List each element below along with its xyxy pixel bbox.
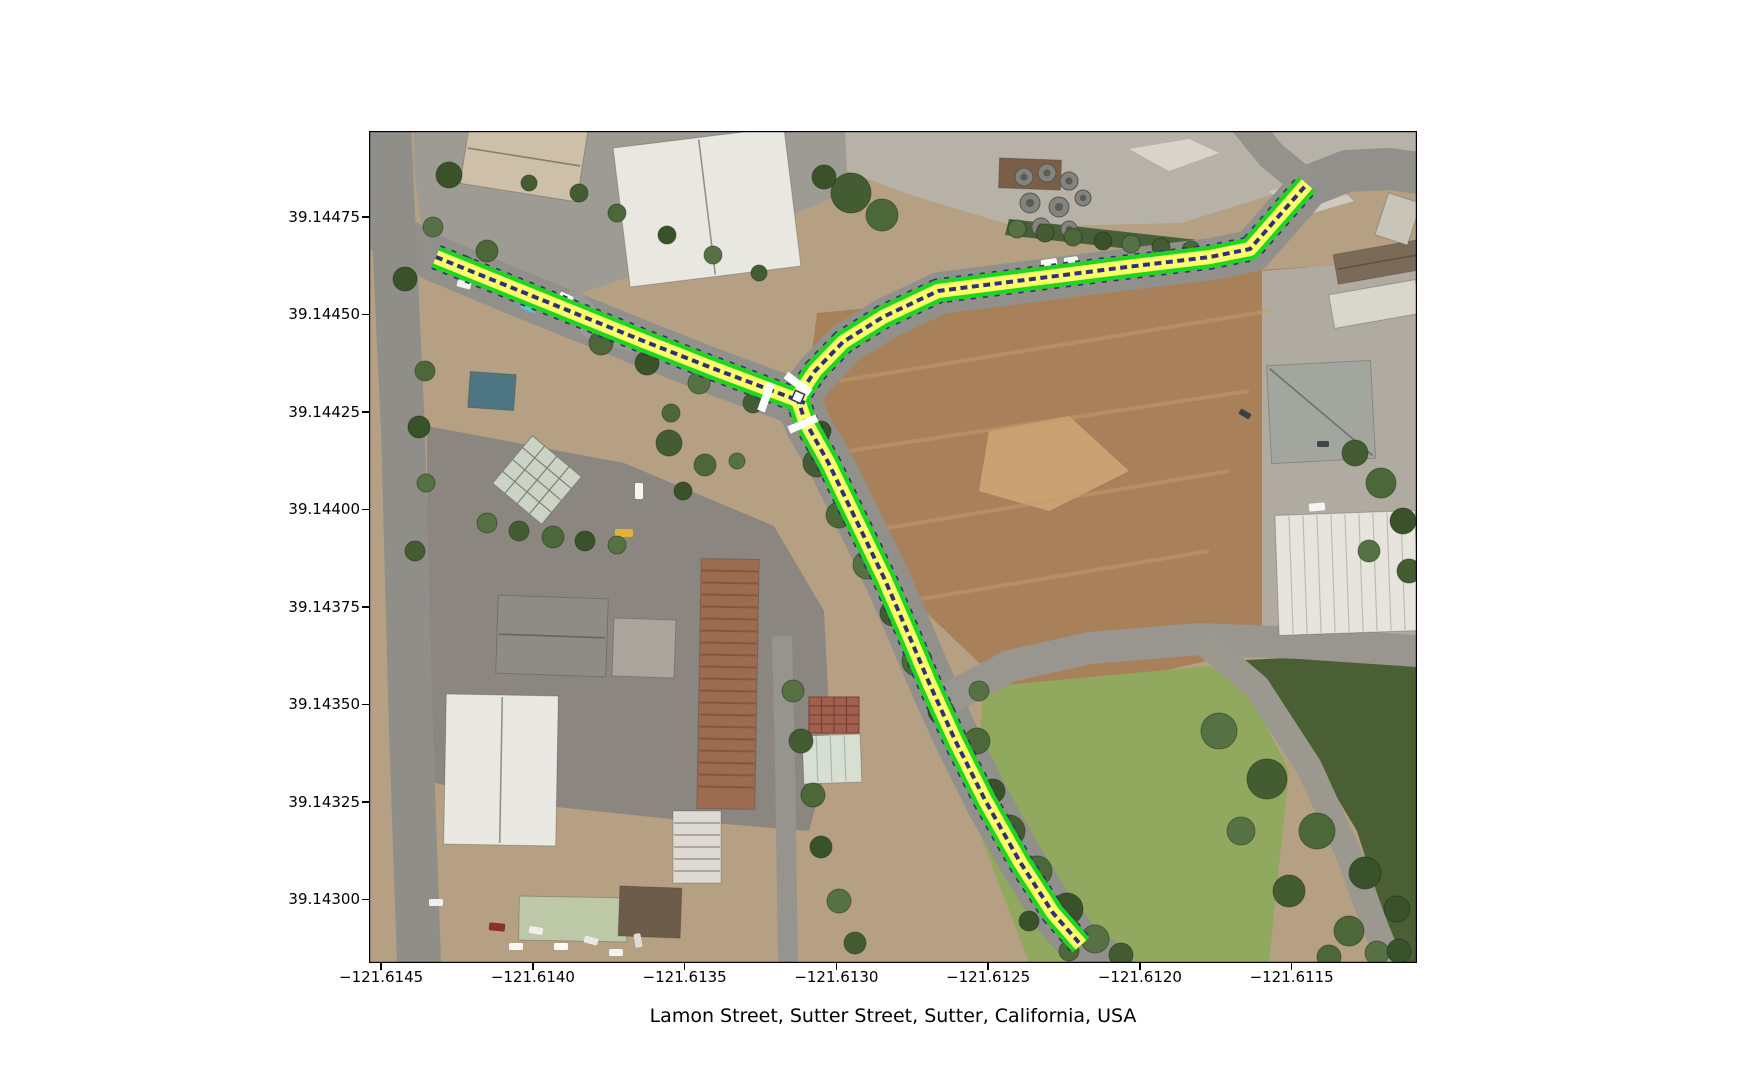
building (468, 371, 516, 410)
tree (570, 184, 588, 202)
tree (1019, 911, 1039, 931)
tree (1064, 228, 1082, 246)
x-tick-label: −121.6135 (620, 968, 750, 986)
building (697, 559, 759, 810)
building (613, 131, 801, 287)
tree (1094, 232, 1112, 250)
building (673, 811, 721, 883)
tree (801, 783, 825, 807)
tree (656, 430, 682, 456)
tree (542, 526, 564, 548)
tree (810, 836, 832, 858)
tree (1366, 468, 1396, 498)
vehicle (1317, 441, 1329, 447)
y-tickmark (362, 704, 369, 705)
building (612, 618, 676, 678)
matplotlib-figure: 39.1447539.1445039.1442539.1440039.14375… (0, 0, 1740, 1080)
tree (1299, 813, 1335, 849)
vehicle (509, 943, 523, 950)
tree (521, 175, 537, 191)
tree (476, 240, 498, 262)
x-tick-label: −121.6140 (468, 968, 598, 986)
y-tick-label: 39.14450 (270, 305, 360, 323)
tree (1227, 817, 1255, 845)
x-tick-label: −121.6125 (923, 968, 1053, 986)
tree (417, 474, 435, 492)
tank-top (1065, 177, 1072, 184)
tree (1109, 943, 1133, 963)
tree (1122, 235, 1140, 253)
tree (704, 246, 722, 264)
building (809, 697, 859, 733)
tree (1342, 440, 1368, 466)
tank-top (1043, 169, 1050, 176)
y-tickmark (362, 216, 369, 217)
tree (1201, 713, 1237, 749)
tree (812, 165, 836, 189)
tree (1036, 224, 1054, 242)
tree (658, 226, 676, 244)
vehicle (489, 922, 506, 931)
tree (436, 162, 462, 188)
building (496, 595, 609, 677)
tree (423, 217, 443, 237)
tree (1273, 875, 1305, 907)
y-tick-label: 39.14400 (270, 500, 360, 518)
tree (1397, 559, 1417, 583)
vehicle (635, 483, 643, 499)
tank-top (1026, 199, 1034, 207)
x-tick-label: −121.6120 (1075, 968, 1205, 986)
tree (405, 541, 425, 561)
y-tick-label: 39.14475 (270, 208, 360, 226)
tree (729, 453, 745, 469)
y-tickmark (362, 899, 369, 900)
tree (393, 267, 417, 291)
tree (1390, 508, 1416, 534)
y-tick-label: 39.14300 (270, 890, 360, 908)
vehicle (609, 949, 623, 956)
vehicle (1309, 502, 1326, 511)
y-tick-label: 39.14350 (270, 695, 360, 713)
y-tickmark (362, 509, 369, 510)
tree (608, 204, 626, 222)
tree (509, 521, 529, 541)
tree (575, 531, 595, 551)
tree (1387, 939, 1411, 963)
tree (866, 199, 898, 231)
y-tick-label: 39.14375 (270, 598, 360, 616)
y-tickmark (362, 314, 369, 315)
tree (608, 536, 626, 554)
tree (1008, 220, 1026, 238)
building (618, 886, 682, 938)
vehicle (554, 943, 568, 950)
tree (1384, 896, 1410, 922)
tree (782, 680, 804, 702)
y-tickmark (362, 606, 369, 607)
y-tick-label: 39.14425 (270, 403, 360, 421)
tree (1334, 916, 1364, 946)
x-tick-label: −121.6115 (1227, 968, 1357, 986)
tank-top (1080, 195, 1086, 201)
tree (694, 454, 716, 476)
tree (1349, 857, 1381, 889)
tank-top (1020, 173, 1027, 180)
tree (674, 482, 692, 500)
tree (1365, 941, 1389, 963)
satellite-map (369, 131, 1417, 963)
y-tickmark (362, 801, 369, 802)
building (444, 694, 559, 846)
tree (751, 265, 767, 281)
y-tickmark (362, 411, 369, 412)
tree (789, 729, 813, 753)
tree (415, 361, 435, 381)
tree (827, 889, 851, 913)
tree (844, 932, 866, 954)
tree (477, 513, 497, 533)
tree (662, 404, 680, 422)
x-tick-label: −121.6130 (771, 968, 901, 986)
tank-top (1055, 203, 1063, 211)
tree (408, 416, 430, 438)
vehicle (429, 899, 443, 906)
x-tick-label: −121.6145 (316, 968, 446, 986)
map-plot-area (369, 131, 1417, 963)
x-axis-label: Lamon Street, Sutter Street, Sutter, Cal… (650, 1005, 1137, 1027)
tree (831, 173, 871, 213)
building (519, 896, 628, 942)
tree (969, 681, 989, 701)
y-tick-label: 39.14325 (270, 793, 360, 811)
tree (1358, 540, 1380, 562)
tree (1247, 759, 1287, 799)
